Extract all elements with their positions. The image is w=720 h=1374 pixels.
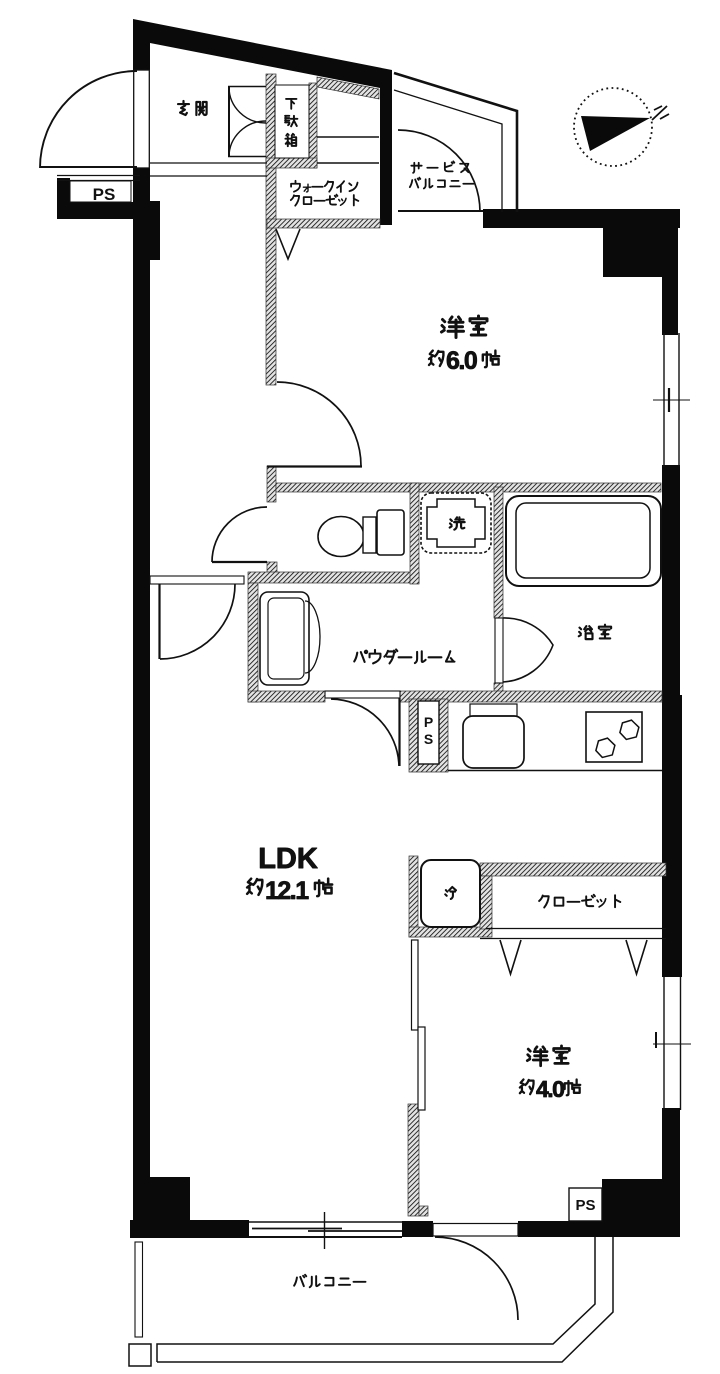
svg-text:PS: PS: [93, 185, 116, 204]
svg-text:PS: PS: [575, 1197, 595, 1214]
svg-text:P: P: [424, 714, 433, 730]
svg-text:4.0: 4.0: [536, 1076, 564, 1102]
svg-text:6.0: 6.0: [446, 347, 477, 375]
svg-text:12.1: 12.1: [265, 877, 309, 905]
svg-text:LDK: LDK: [258, 843, 318, 875]
svg-text:S: S: [424, 731, 433, 747]
